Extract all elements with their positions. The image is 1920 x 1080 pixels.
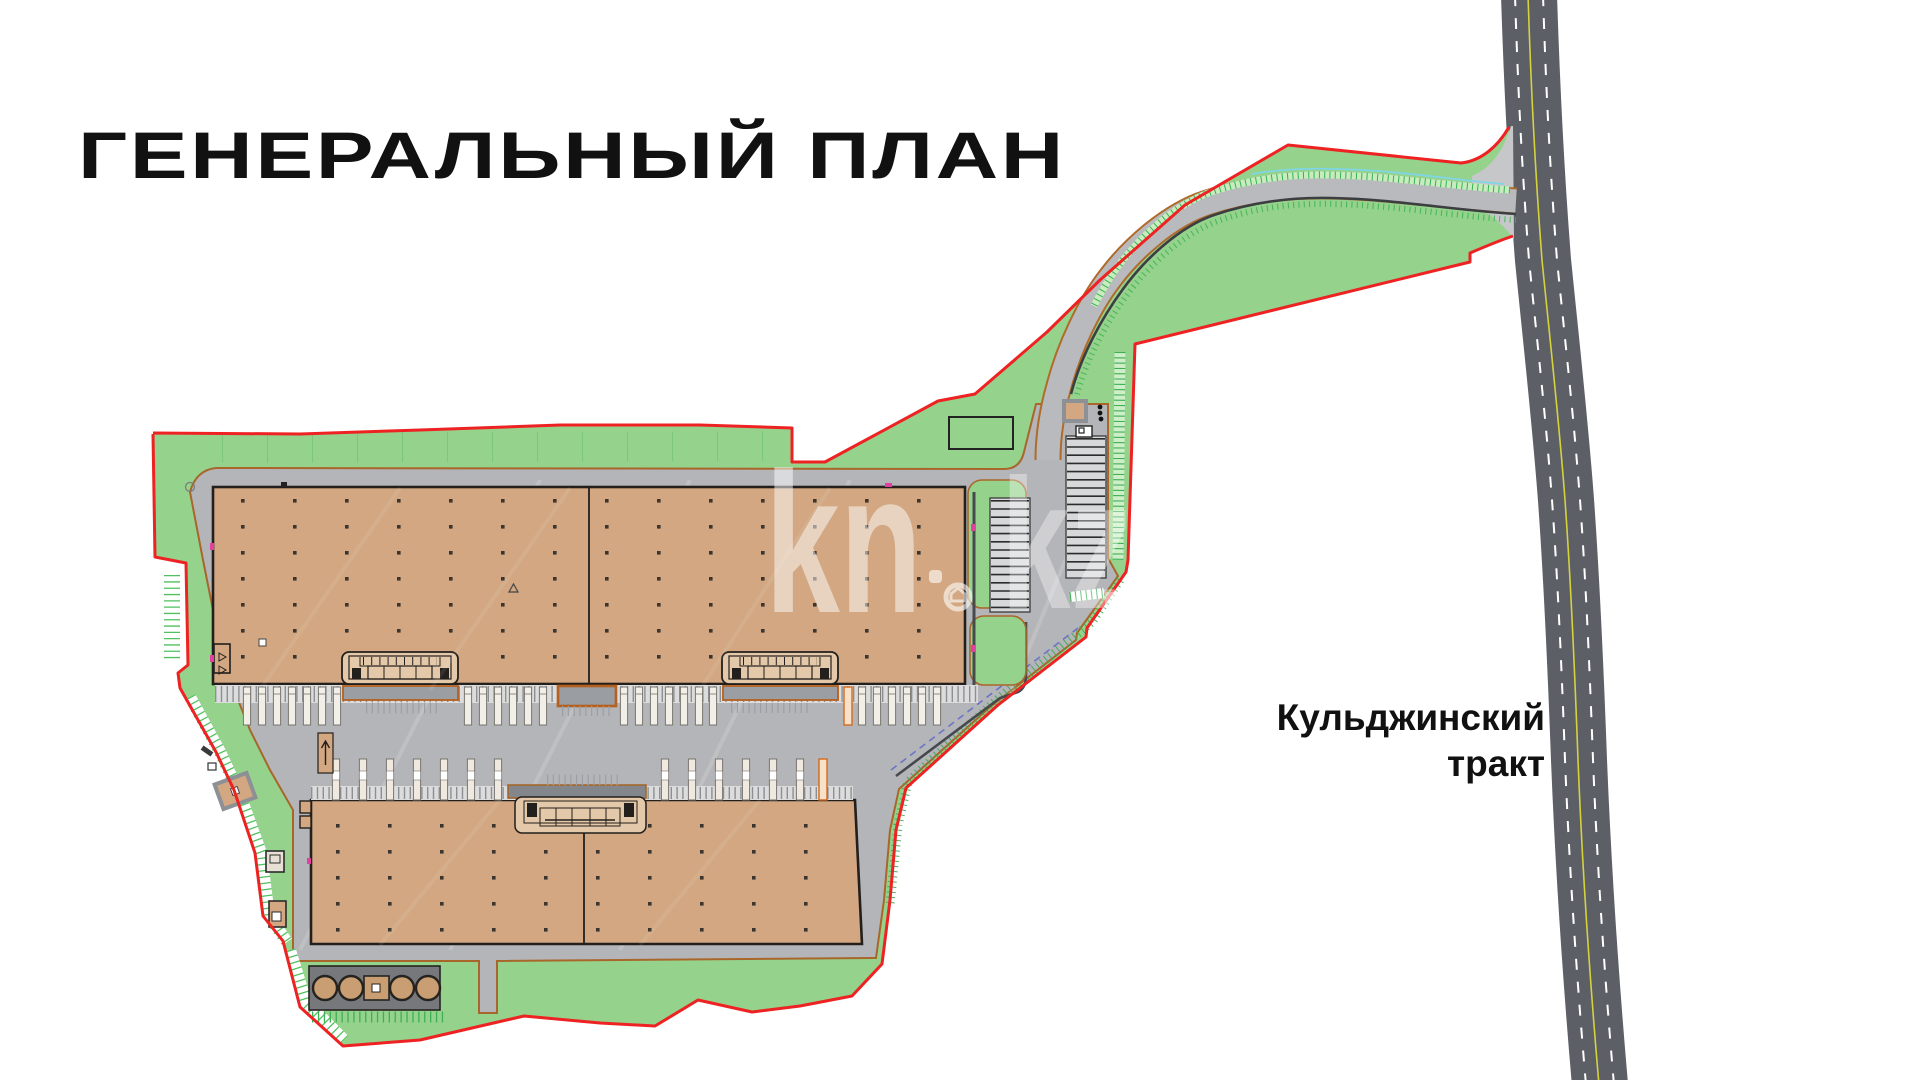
svg-text:kn: kn (765, 432, 922, 655)
svg-text:ГЕНЕРАЛЬНЫЙ ПЛАН: ГЕНЕРАЛЬНЫЙ ПЛАН (78, 117, 1066, 192)
svg-text:kz: kz (1001, 442, 1133, 648)
svg-text:тракт: тракт (1447, 743, 1545, 784)
svg-text:Кульджинский: Кульджинский (1277, 697, 1545, 738)
